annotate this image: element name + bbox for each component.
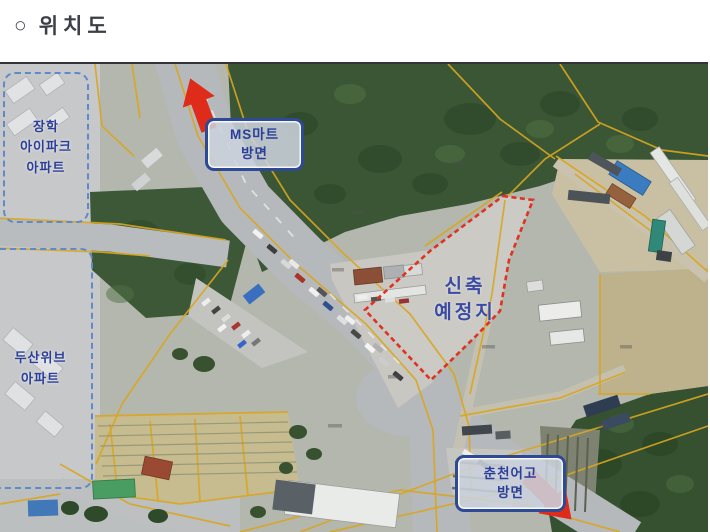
direction-chuncheon-line1: 춘천어고 — [484, 465, 538, 483]
apartment-janghak-line1: 장학 — [33, 117, 59, 137]
apartment-janghak-line3: 아파트 — [27, 158, 66, 178]
location-map: 장학 아이파크 아파트 두산위브 아파트 MS마트 방면 신축 예정지 춘천어고… — [0, 62, 708, 532]
direction-msmart-line2: 방면 — [241, 145, 268, 163]
apartment-box-doosan: 두산위브 아파트 — [0, 248, 93, 489]
document-page: ○ 위치도 — [0, 0, 710, 532]
direction-box-chuncheon: 춘천어고 방면 — [455, 455, 566, 512]
construction-site-label: 신축 예정지 — [421, 274, 509, 325]
page-title-text: 위치도 — [39, 10, 112, 40]
apartment-doosan-line2: 아파트 — [21, 369, 60, 389]
direction-box-msmart: MS마트 방면 — [205, 118, 304, 171]
direction-chuncheon-line2: 방면 — [497, 484, 524, 502]
apartment-box-janghak: 장학 아이파크 아파트 — [3, 72, 89, 223]
apartment-doosan-line1: 두산위브 — [15, 348, 67, 368]
page-title: ○ 위치도 — [14, 10, 112, 40]
direction-msmart-line1: MS마트 — [230, 126, 279, 144]
satellite-map-image — [0, 64, 708, 532]
site-label-line1: 신축 — [421, 274, 509, 300]
apartment-janghak-line2: 아이파크 — [20, 137, 72, 157]
site-label-line2: 예정지 — [421, 300, 509, 326]
circle-bullet-icon: ○ — [14, 15, 27, 36]
